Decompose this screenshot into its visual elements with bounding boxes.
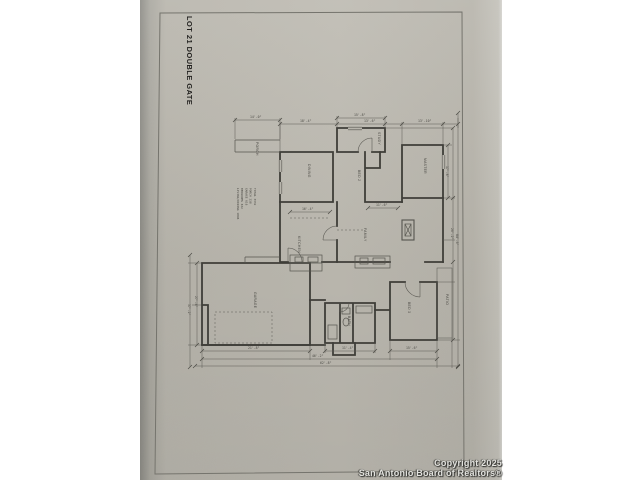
room-label: BED 3 xyxy=(407,302,411,313)
area-table-line: PORCH 238 xyxy=(249,188,253,204)
dimension-label: 11'-6" xyxy=(376,203,388,207)
dimension-label: 46'-2" xyxy=(312,354,324,358)
room-label: PATIO xyxy=(445,294,449,305)
room-label: KITCHEN xyxy=(297,236,301,253)
dimension-label: 18'-4" xyxy=(300,119,312,123)
area-table-line: BEDROOMS 632 xyxy=(240,188,244,209)
dimension-label: 16'-4" xyxy=(302,207,314,211)
dimension-label: 27'-4" xyxy=(194,296,198,308)
dimension-label: 11'-4" xyxy=(342,346,354,350)
dimension-label: 14'-0" xyxy=(250,115,262,119)
floor-plan-photo: LOT 21 DOUBLE GATE xyxy=(140,0,502,480)
area-table-line: TOTAL 3332 xyxy=(253,188,257,206)
watermark-line1: Copyright 2025 xyxy=(359,458,502,468)
room-label: DINING xyxy=(307,164,311,178)
dimension-label: 13'-6" xyxy=(364,119,376,123)
dimension-label: 21'-8" xyxy=(248,346,260,350)
floor-plan-drawing: LOT 21 DOUBLE GATE xyxy=(140,0,502,480)
sheet-title: LOT 21 DOUBLE GATE xyxy=(185,16,194,105)
room-label: FAMILY xyxy=(363,228,367,242)
dimension-label: 26'-2" xyxy=(450,228,454,240)
area-table-line: GARAGE 616 xyxy=(244,188,248,206)
dimension-label: 15'-8" xyxy=(354,113,366,117)
dimension-label: 17'-8" xyxy=(445,166,449,178)
dimension-label: 13'-10" xyxy=(418,119,432,123)
room-label: STUDY xyxy=(377,132,381,145)
room-label: MASTER xyxy=(423,158,427,174)
watermark-line2: San Antonio Board of Realtors® xyxy=(359,468,502,478)
dimension-label: 84'-6" xyxy=(455,234,459,246)
room-label: BED 2 xyxy=(357,170,361,181)
page-background: { "photo": { "sheet_title": "LOT 21 DOUB… xyxy=(0,0,640,480)
area-table-line: LIVING/DINING 1846 xyxy=(236,188,240,220)
dimension-label: 15'-6" xyxy=(406,346,418,350)
dimension-label: 37'-2" xyxy=(187,304,191,316)
room-label: BATH xyxy=(347,316,351,326)
room-label: PORCH xyxy=(255,142,259,156)
watermark: Copyright 2025 San Antonio Board of Real… xyxy=(359,458,502,478)
dimension-label: 62'-8" xyxy=(320,361,332,365)
room-label: GARAGE xyxy=(253,292,257,309)
